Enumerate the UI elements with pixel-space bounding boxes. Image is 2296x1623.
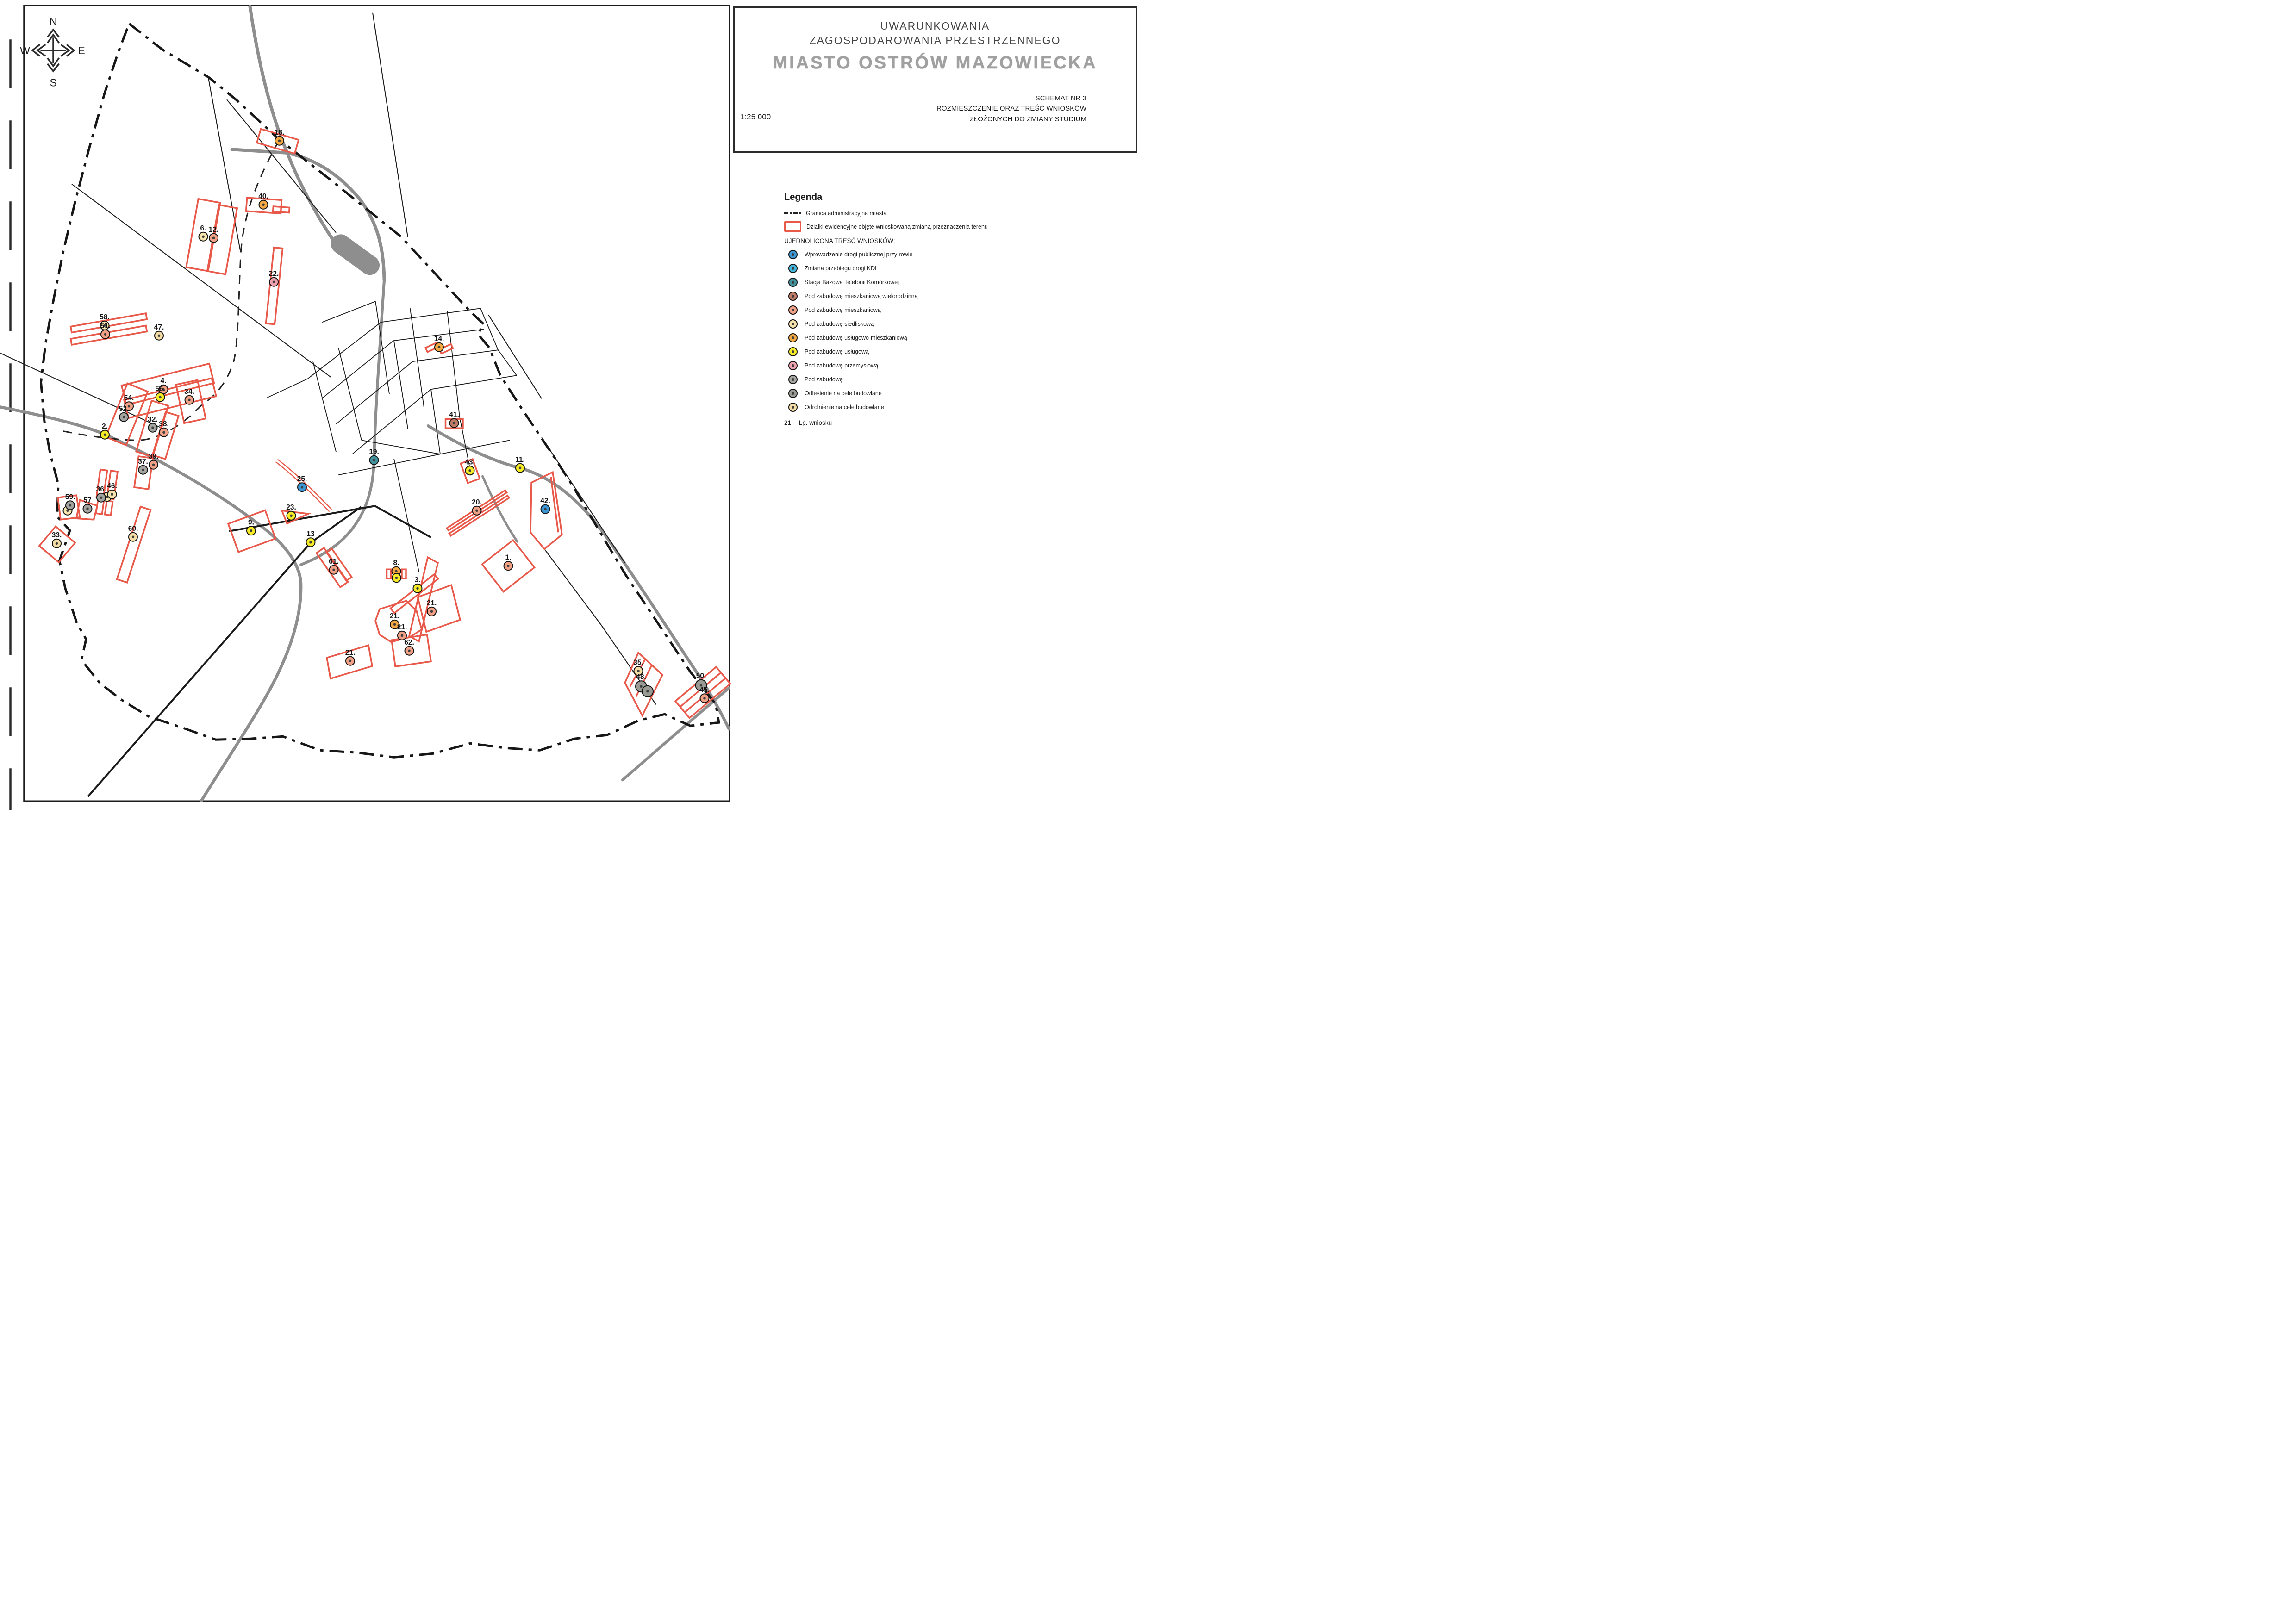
map-marker[interactable] [642, 686, 653, 697]
map-marker-37[interactable]: 37. [138, 458, 148, 474]
map-marker-43[interactable]: 43. [465, 458, 475, 475]
city-boundary [41, 24, 719, 757]
marker-label: 52. [119, 405, 129, 413]
map-marker-21[interactable]: 21. [397, 623, 407, 640]
legend-item-label: Pod zabudowę mieszkaniową wielorodzinną [805, 293, 918, 299]
legend-item-label: Pod zabudowę usługową [805, 348, 869, 355]
marker-dot [640, 685, 643, 688]
marker-dot [416, 587, 419, 590]
legend-item-mieszkaniowa: Pod zabudowę mieszkaniową [784, 305, 1141, 315]
marker-label: 42. [540, 497, 550, 505]
marker-label: 18. [275, 129, 285, 137]
legend-item-label: Zmiana przebiegu drogi KDL [805, 265, 878, 272]
marker-label: 4. [161, 377, 167, 385]
marker-dot [408, 650, 411, 653]
marker-dot [373, 459, 375, 462]
marker-label: 37. [138, 458, 148, 466]
marker-label: 60. [128, 525, 138, 533]
siedliskowa-marker-icon [788, 319, 798, 329]
marker-label: 8. [393, 559, 399, 567]
map-marker-59[interactable]: 59. [65, 493, 75, 510]
map-marker-1[interactable]: 1. [504, 553, 513, 570]
marker-dot [158, 335, 161, 337]
marker-dot [519, 467, 522, 470]
marker-dot [393, 623, 396, 626]
marker-label: 41. [449, 411, 459, 419]
legend-item-uslugowa: Pod zabudowę usługową [784, 347, 1141, 356]
marker-label: 13 [306, 530, 315, 538]
marker-label: 40. [258, 193, 268, 200]
map-title: MIASTO OSTRÓW MAZOWIECKA [735, 53, 1136, 73]
marker-label: 57 [83, 497, 91, 504]
legend: Legenda Granica administracyjna miasta D… [784, 192, 1141, 426]
pod_zabudowe-marker-icon [788, 375, 798, 384]
map-marker-33[interactable]: 33. [52, 531, 62, 548]
marker-label: 59. [65, 493, 75, 501]
marker-dot [475, 510, 478, 512]
marker-label: 6. [200, 224, 206, 232]
marker-label: 2. [102, 423, 108, 430]
legend-item-label: Stacja Bazowa Telefonii Komórkowej [805, 279, 899, 286]
marker-label: 35. [633, 659, 643, 666]
marker-dot [151, 427, 154, 429]
legend-item-uslugowo_mieszkaniowa: Pod zabudowę usługowo-mieszkaniową [784, 333, 1141, 342]
schemat-line-1: SCHEMAT NR 3 [936, 93, 1086, 104]
legend-item-siedliskowa: Pod zabudowę siedliskową [784, 319, 1141, 329]
marker-dot [703, 697, 706, 700]
uslugowo_mieszkaniowa-marker-icon [788, 333, 798, 342]
marker-label: 11. [515, 456, 525, 464]
marker-label: 1. [505, 553, 512, 561]
marker-dot [646, 690, 649, 693]
marker-label: 32. [148, 416, 158, 423]
marker-dot [544, 508, 547, 511]
odlesienie-marker-icon [788, 389, 798, 398]
marker-dot [142, 469, 144, 472]
schemat-caption: SCHEMAT NR 3 ROZMIESZCZENIE ORAZ TREŚĆ W… [936, 93, 1086, 125]
title-line-2: ZAGOSPODAROWANIA PRZESTRZENNEGO [735, 34, 1136, 47]
marker-label: 9. [248, 518, 254, 526]
marker-label: 21. [397, 623, 407, 631]
legend-item-label: Odlesienie na cele budowlane [805, 390, 882, 397]
marker-dot [309, 541, 312, 544]
marker-dot [438, 346, 441, 349]
marker-dot [262, 204, 265, 206]
compass-n: N [50, 15, 57, 27]
marker-label: 61. [329, 558, 339, 566]
page: 18.40.6.12.22.58.51.47.4.56.34.54.52.32.… [0, 0, 1148, 812]
schemat-line-3: ZŁOŻONYCH DO ZMIANY STUDIUM [936, 114, 1086, 125]
marker-label: 22. [269, 270, 279, 278]
legend-title: Legenda [784, 192, 1141, 203]
legend-items: Wprowadzenie drogi publicznej przy rowie… [784, 250, 1141, 412]
marker-label: 45. [699, 686, 710, 694]
legend-item-przemyslowa: Pod zabudowę przemysłową [784, 361, 1141, 370]
legend-item-pod_zabudowe: Pod zabudowę [784, 375, 1141, 384]
map-marker-6[interactable]: 6. [199, 224, 208, 241]
marker-dot [637, 670, 640, 672]
marker-dot [349, 660, 352, 663]
marker-label: 33. [52, 531, 62, 539]
marker-label: 12. [209, 226, 219, 234]
legend-item-stacja_bazowa: Stacja Bazowa Telefonii Komórkowej [784, 278, 1141, 287]
marker-dot [86, 508, 89, 510]
marker-label: 50. [696, 672, 706, 680]
odrolnienie-marker-icon [788, 403, 798, 412]
uslugowa-marker-icon [788, 347, 798, 356]
compass-w: W [20, 44, 30, 56]
marker-label: 21. [345, 649, 356, 657]
compass-e: E [78, 44, 85, 56]
street-lines-layer [0, 13, 656, 797]
map-marker-12[interactable]: 12. [209, 226, 219, 243]
legend-lp-number: 21. [784, 419, 793, 426]
marker-label: 23. [286, 504, 296, 511]
legend-boundary-label: Granica administracyjna miasta [806, 210, 886, 217]
droga_kdl-marker-icon [788, 264, 798, 273]
legend-lp-label: Lp. wniosku [799, 419, 832, 426]
legend-item-odrolnienie: Odrolnienie na cele budowlane [784, 403, 1141, 412]
title-line-1: UWARUNKOWANIA [735, 20, 1136, 32]
marker-dot [273, 281, 275, 284]
legend-item-label: Pod zabudowę przemysłową [805, 362, 878, 369]
legend-item-odlesienie: Odlesienie na cele budowlane [784, 389, 1141, 398]
marker-dot [290, 515, 293, 517]
map-marker-32[interactable]: 32. [148, 416, 158, 432]
marker-label: 34. [184, 388, 194, 396]
marker-dot [395, 577, 398, 579]
map-marker-11[interactable]: 11. [515, 456, 525, 473]
map-marker-57[interactable]: 57 [83, 497, 92, 513]
legend-item-droga_kdl: Zmiana przebiegu drogi KDL [784, 264, 1141, 273]
marker-dot [159, 396, 162, 399]
marker-label: 21. [390, 612, 400, 620]
marker-label: 38. [159, 420, 169, 428]
map-marker-40[interactable]: 40. [258, 193, 268, 209]
legend-item-wielorodzinna: Pod zabudowę mieszkaniową wielorodzinną [784, 292, 1141, 301]
compass-rose: N S W E [20, 15, 85, 88]
marker-dot [56, 542, 58, 545]
map-marker-47[interactable]: 47. [154, 323, 164, 340]
marker-label: 46. [107, 482, 117, 490]
map-marker-19[interactable]: 19. [369, 448, 379, 465]
legend-item-label: Odrolnienie na cele budowlane [805, 404, 884, 410]
marker-label: 19. [369, 448, 379, 456]
mieszkaniowa-marker-icon [788, 305, 798, 315]
marker-label: 56. [155, 385, 165, 393]
marker-dot [132, 536, 135, 539]
marker-label: 54. [124, 394, 134, 402]
marker-label: 14. [434, 335, 444, 343]
marker-dot [111, 493, 113, 496]
marker-dot [69, 504, 72, 507]
legend-parcel-label: Działki ewidencyjne objęte wnioskowaną z… [806, 224, 988, 230]
marker-dot [100, 497, 103, 499]
marker-dot [507, 565, 510, 567]
droga_publiczna-marker-icon [788, 250, 798, 259]
marker-dot [212, 237, 215, 240]
marker-label: 36. [96, 485, 106, 493]
legend-item-label: Pod zabudowę mieszkaniową [805, 307, 881, 313]
przemyslowa-marker-icon [788, 361, 798, 370]
parcel-outline-icon [784, 221, 801, 232]
map-marker-21[interactable]: 21. [427, 599, 437, 616]
marker-dot [123, 416, 125, 419]
boundary-line-icon [784, 212, 801, 214]
wielorodzinna-marker-icon [788, 292, 798, 301]
map-marker-13[interactable]: 13 [306, 530, 315, 547]
legend-item-droga_publiczna: Wprowadzenie drogi publicznej przy rowie [784, 250, 1141, 259]
marker-dot [188, 399, 191, 402]
marker-dot [468, 469, 471, 472]
marker-label: 21. [427, 599, 437, 607]
marker-label: 20. [472, 498, 482, 506]
marker-dot [395, 570, 398, 573]
marker-label: 3. [415, 576, 421, 584]
marker-dot [250, 529, 253, 532]
marker-dot [430, 610, 433, 613]
legend-item-label: Pod zabudowę siedliskową [805, 321, 874, 327]
marker-dot [104, 333, 107, 336]
map-marker[interactable] [392, 573, 401, 582]
marker-dot [162, 431, 165, 434]
title-block: UWARUNKOWANIA ZAGOSPODAROWANIA PRZESTRZE… [733, 6, 1137, 153]
compass-s: S [50, 76, 56, 88]
marker-dot [301, 486, 304, 489]
marker-label: 58. [100, 313, 110, 321]
marker-label: 25. [297, 475, 307, 483]
stacja_bazowa-marker-icon [788, 278, 798, 287]
map-marker-34[interactable]: 34. [184, 388, 194, 404]
marker-label: 39. [149, 453, 159, 460]
marker-dot [453, 422, 455, 425]
legend-lp-row: 21. Lp. wniosku [784, 419, 1141, 426]
marker-dot [278, 140, 281, 143]
map-marker-60[interactable]: 60. [128, 525, 138, 541]
marker-label: 43. [465, 458, 475, 466]
marker-dot [401, 634, 404, 637]
marker-dot [104, 434, 106, 436]
marker-label: 48. [636, 673, 646, 681]
legend-boundary-row: Granica administracyjna miasta [784, 210, 1141, 217]
marker-dot [332, 569, 335, 572]
map-scale: 1:25 000 [740, 112, 771, 122]
schemat-line-2: ROZMIESZCZENIE ORAZ TREŚĆ WNIOSKÓW [936, 104, 1086, 114]
map-marker-42[interactable]: 42. [540, 497, 550, 514]
map-marker-62[interactable]: 62. [404, 639, 414, 655]
marker-label: 51. [100, 322, 111, 330]
legend-item-label: Pod zabudowę usługowo-mieszkaniową [805, 335, 907, 341]
legend-item-label: Wprowadzenie drogi publicznej przy rowie [805, 251, 912, 258]
legend-parcel-row: Działki ewidencyjne objęte wnioskowaną z… [784, 221, 1141, 232]
legend-section-header: UJEDNOLICONA TREŚĆ WNIOSKÓW: [784, 237, 1141, 244]
marker-label: 47. [154, 323, 164, 331]
parcels-layer [39, 129, 730, 718]
map-marker-51[interactable]: 51. [100, 322, 111, 339]
map-marker-21[interactable]: 21. [345, 649, 356, 665]
marker-dot [202, 236, 205, 238]
legend-item-label: Pod zabudowę [805, 376, 843, 383]
marker-dot [152, 464, 155, 466]
marker-label: 62. [404, 639, 414, 647]
markers-layer: 18.40.6.12.22.58.51.47.4.56.34.54.52.32.… [52, 129, 710, 703]
